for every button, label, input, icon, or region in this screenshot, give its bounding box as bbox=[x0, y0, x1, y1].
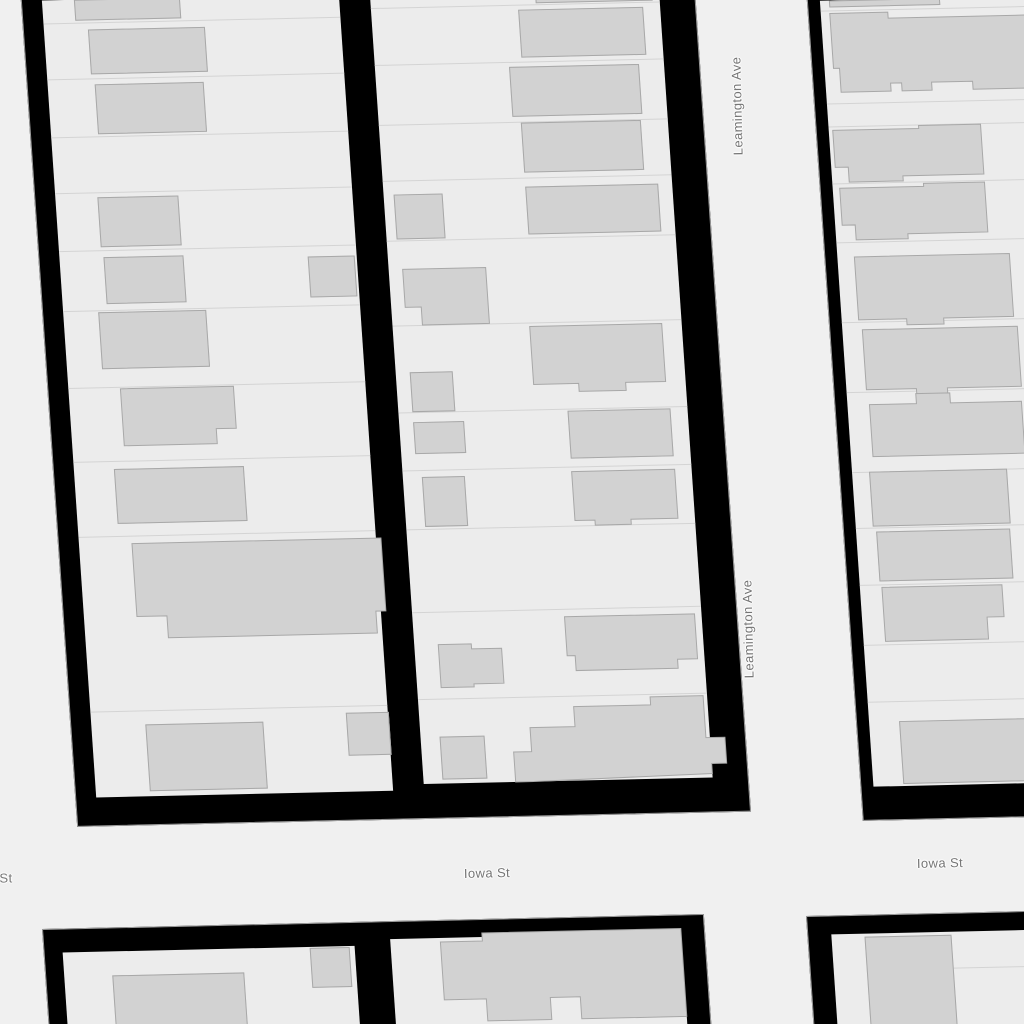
building-footprint bbox=[853, 252, 1015, 326]
building-footprint-shape bbox=[839, 182, 988, 240]
parcel-boundary-line bbox=[383, 174, 672, 182]
street-label: Leamington Ave bbox=[739, 580, 756, 679]
building-footprint bbox=[413, 421, 466, 454]
building-footprint bbox=[869, 469, 1011, 527]
building-footprint-shape bbox=[120, 386, 237, 445]
parcel-area-parcels-west bbox=[42, 0, 393, 797]
building-footprint bbox=[119, 385, 238, 447]
building-footprint bbox=[876, 529, 1013, 582]
building-footprint bbox=[509, 64, 642, 117]
building-footprint bbox=[97, 195, 181, 247]
building-footprint-shape bbox=[530, 324, 666, 393]
city-block-block-northeast bbox=[806, 0, 1024, 821]
building-footprint bbox=[571, 468, 680, 526]
building-footprint-shape bbox=[440, 929, 687, 1022]
building-footprint-shape bbox=[862, 326, 1021, 395]
building-footprint bbox=[131, 537, 389, 640]
building-footprint bbox=[881, 584, 1007, 643]
parcel-boundary-line bbox=[55, 187, 352, 195]
city-block-block-southeast bbox=[806, 909, 1024, 1024]
building-footprint-shape bbox=[869, 391, 1024, 456]
building-footprint-shape bbox=[833, 124, 985, 182]
building-footprint bbox=[103, 255, 186, 304]
building-footprint-shape bbox=[830, 9, 1024, 93]
parcel-area-parcels-east bbox=[820, 0, 1024, 787]
building-footprint bbox=[525, 184, 661, 235]
building-footprint bbox=[95, 82, 207, 134]
building-footprint bbox=[114, 466, 248, 524]
parcel-area-parcels-se bbox=[831, 928, 1024, 1024]
building-footprint bbox=[112, 972, 248, 1024]
parcel-boundary-line bbox=[73, 455, 370, 463]
building-footprint bbox=[308, 255, 358, 297]
building-footprint-shape bbox=[882, 585, 1006, 642]
street-label: Iowa St bbox=[464, 865, 510, 881]
building-footprint-shape bbox=[510, 695, 728, 782]
city-block-block-northwest bbox=[20, 0, 751, 827]
parcel-boundary-line bbox=[90, 705, 387, 713]
building-footprint bbox=[88, 27, 208, 75]
street-label: Iowa St bbox=[917, 855, 963, 871]
building-footprint bbox=[509, 694, 729, 783]
building-footprint bbox=[98, 310, 210, 369]
building-footprint bbox=[518, 7, 646, 58]
building-footprint bbox=[394, 193, 446, 239]
building-footprint bbox=[567, 408, 673, 458]
building-footprint bbox=[831, 123, 985, 183]
building-footprint-shape bbox=[132, 538, 387, 639]
parcel-area-parcels-sw bbox=[63, 946, 363, 1024]
building-footprint bbox=[310, 947, 353, 988]
map-viewport[interactable]: Leamington AveLeamington AveIowa StIowa … bbox=[0, 0, 1024, 1024]
building-footprint bbox=[439, 927, 688, 1022]
building-footprint bbox=[521, 120, 644, 173]
parcel-boundary-line bbox=[78, 530, 375, 538]
parcel-boundary-line bbox=[954, 964, 1024, 969]
building-footprint bbox=[861, 325, 1023, 396]
building-footprint bbox=[529, 323, 668, 394]
building-footprint bbox=[864, 935, 957, 1024]
building-footprint bbox=[838, 181, 989, 241]
parcel-boundary-line bbox=[827, 97, 1024, 105]
building-footprint-shape bbox=[438, 643, 504, 687]
building-footprint bbox=[437, 642, 505, 688]
building-footprint bbox=[563, 613, 699, 672]
building-footprint bbox=[899, 716, 1024, 784]
building-footprint bbox=[829, 8, 1024, 95]
building-footprint bbox=[145, 722, 268, 792]
street-label: Leamington Ave bbox=[728, 57, 745, 156]
street-label: St bbox=[0, 870, 13, 885]
building-footprint-shape bbox=[854, 253, 1014, 325]
building-footprint bbox=[829, 0, 940, 7]
building-footprint bbox=[440, 736, 488, 780]
building-footprint bbox=[402, 266, 491, 326]
city-block-block-southwest bbox=[42, 914, 713, 1024]
parcel-area-parcels-smid bbox=[390, 933, 689, 1024]
building-footprint bbox=[868, 390, 1024, 457]
building-footprint bbox=[422, 476, 468, 527]
building-footprint bbox=[410, 371, 456, 412]
building-footprint-shape bbox=[403, 268, 490, 326]
parcel-boundary-line bbox=[412, 606, 701, 614]
parcel-boundary-line bbox=[868, 695, 1024, 703]
building-footprint bbox=[74, 0, 181, 21]
building-footprint-shape bbox=[572, 469, 679, 525]
building-footprint bbox=[346, 712, 392, 756]
parcel-boundary-line bbox=[63, 304, 360, 312]
parcel-area-parcels-mid bbox=[370, 0, 713, 784]
building-footprint-shape bbox=[565, 614, 699, 671]
